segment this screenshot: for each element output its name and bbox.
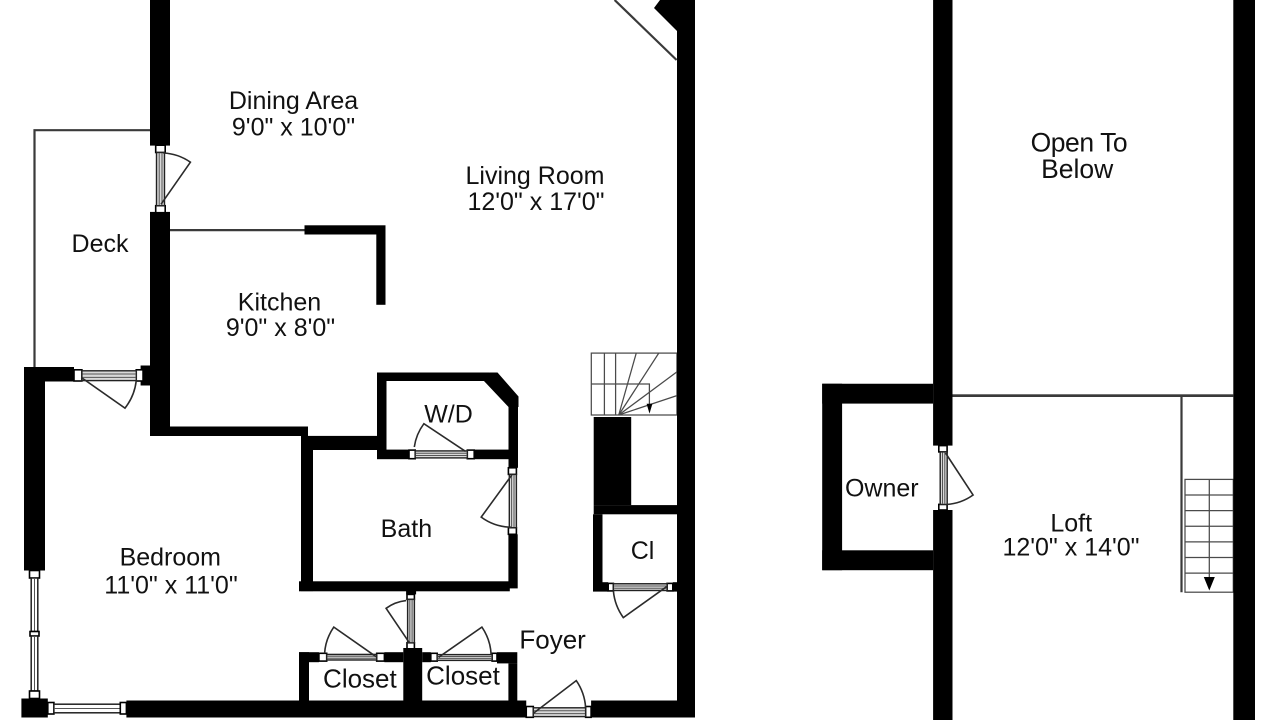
svg-text:Closet: Closet xyxy=(323,664,397,694)
svg-text:Foyer: Foyer xyxy=(519,625,586,655)
svg-text:Owner: Owner xyxy=(845,475,919,503)
svg-text:Deck: Deck xyxy=(72,230,129,258)
svg-text:Bath: Bath xyxy=(381,515,432,543)
svg-text:W/D: W/D xyxy=(424,401,473,429)
svg-text:12'0" x 14'0": 12'0" x 14'0" xyxy=(1002,534,1139,562)
svg-text:Dining Area: Dining Area xyxy=(229,87,358,115)
svg-text:Cl: Cl xyxy=(631,537,655,565)
svg-text:Bedroom: Bedroom xyxy=(120,544,221,572)
svg-text:Closet: Closet xyxy=(426,661,500,691)
svg-text:9'0" x 8'0": 9'0" x 8'0" xyxy=(226,314,335,342)
svg-text:12'0" x 17'0": 12'0" x 17'0" xyxy=(467,188,604,216)
svg-text:Below: Below xyxy=(1041,154,1114,184)
svg-text:Kitchen: Kitchen xyxy=(238,289,321,317)
svg-text:9'0" x 10'0": 9'0" x 10'0" xyxy=(232,114,355,142)
svg-text:11'0" x 11'0": 11'0" x 11'0" xyxy=(104,571,237,599)
svg-text:Living Room: Living Room xyxy=(466,162,605,190)
